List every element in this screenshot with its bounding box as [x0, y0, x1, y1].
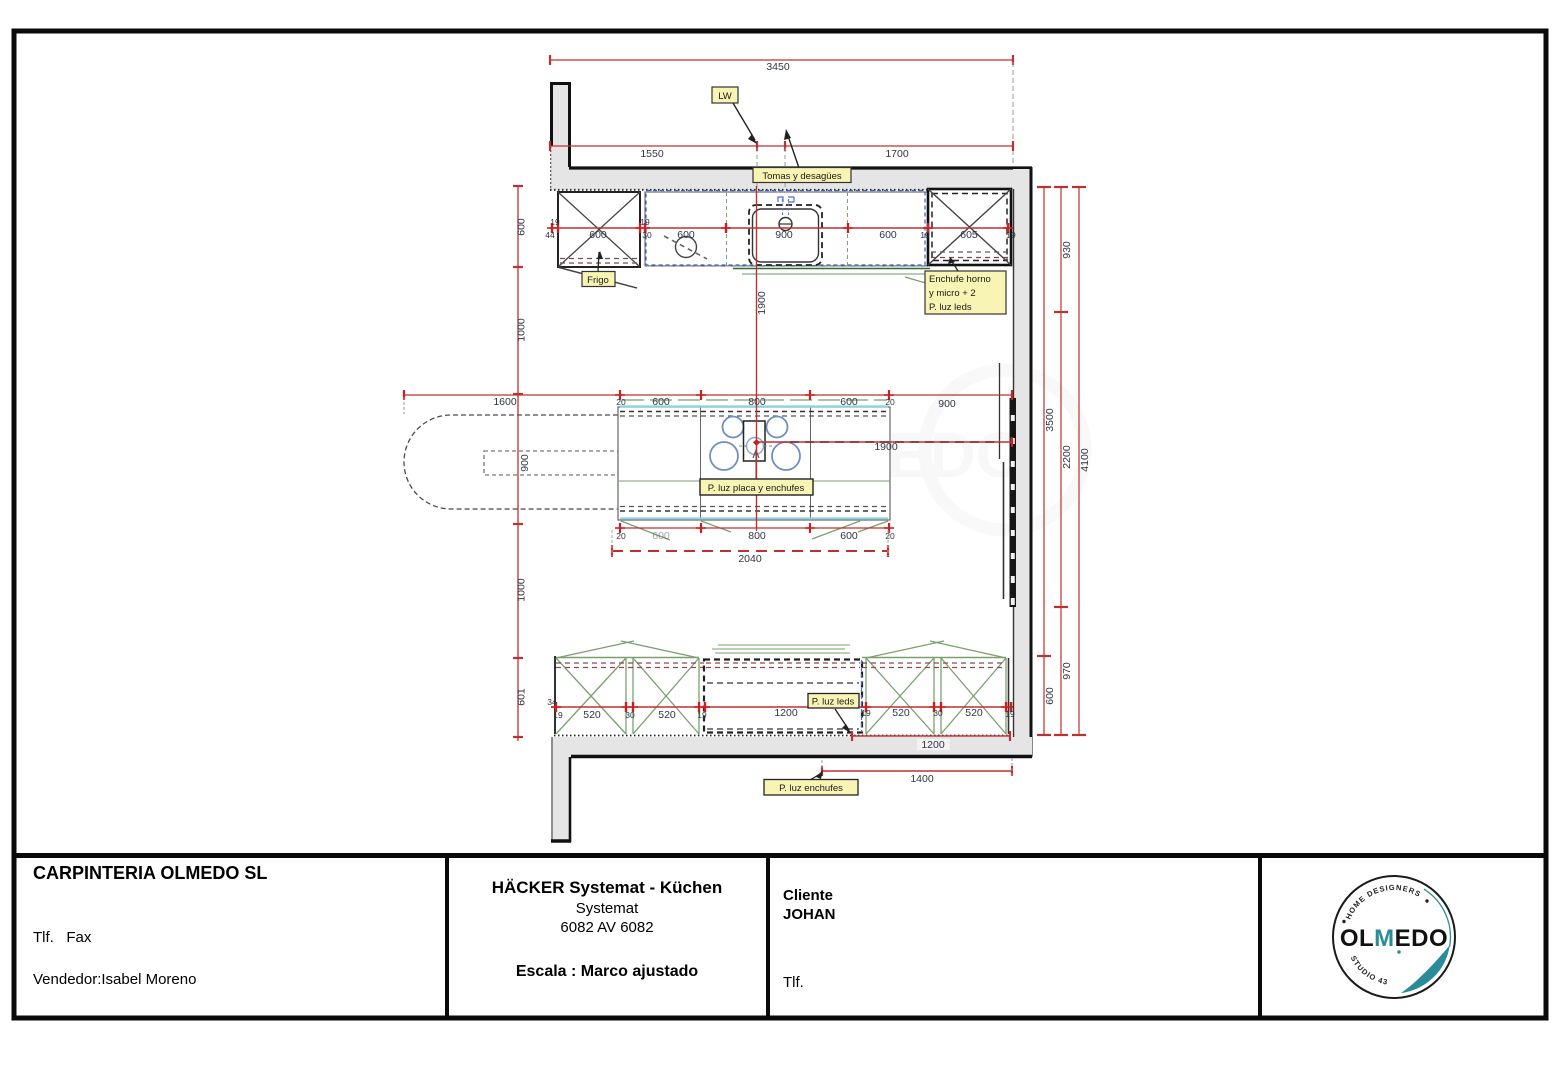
svg-text:1600: 1600 — [493, 396, 517, 408]
svg-text:Systemat: Systemat — [576, 900, 639, 917]
svg-text:900: 900 — [938, 398, 956, 410]
svg-text:30: 30 — [642, 230, 652, 240]
svg-text:P. luz leds: P. luz leds — [812, 697, 855, 708]
svg-text:4100: 4100 — [1079, 448, 1091, 472]
svg-text:44: 44 — [545, 230, 555, 240]
svg-text:520: 520 — [965, 707, 983, 719]
svg-text:20: 20 — [885, 397, 895, 407]
svg-text:1200: 1200 — [774, 707, 798, 719]
svg-text:y micro + 2: y micro + 2 — [929, 288, 976, 299]
svg-text:P. luz placa y enchufes: P. luz placa y enchufes — [708, 483, 805, 494]
svg-text:600: 600 — [879, 229, 897, 241]
svg-text:600: 600 — [652, 396, 670, 408]
svg-text:1900: 1900 — [756, 291, 768, 315]
svg-text:Tomas y desagües: Tomas y desagües — [762, 171, 841, 182]
svg-text:30: 30 — [625, 710, 635, 720]
svg-text:OLMEDO: OLMEDO — [1340, 925, 1448, 952]
svg-text:P. luz enchufes: P. luz enchufes — [779, 783, 843, 794]
svg-text:19: 19 — [697, 710, 707, 720]
svg-text:1000: 1000 — [516, 318, 528, 342]
svg-text:520: 520 — [892, 707, 910, 719]
svg-text:900: 900 — [519, 454, 531, 472]
svg-text:34: 34 — [547, 697, 557, 707]
svg-text:19: 19 — [553, 710, 563, 720]
svg-text:600: 600 — [840, 396, 858, 408]
svg-text:1700: 1700 — [885, 148, 909, 160]
svg-text:3450: 3450 — [766, 61, 790, 73]
svg-text:2040: 2040 — [738, 553, 762, 565]
svg-text:19: 19 — [1006, 230, 1016, 240]
svg-text:1550: 1550 — [640, 148, 664, 160]
svg-text:6082 AV 6082: 6082 AV 6082 — [560, 919, 653, 936]
svg-text:HÄCKER Systemat - Küchen: HÄCKER Systemat - Küchen — [492, 878, 723, 897]
svg-text:19: 19 — [920, 230, 930, 240]
svg-text:20: 20 — [616, 397, 626, 407]
svg-text:19: 19 — [640, 217, 650, 227]
svg-text:600: 600 — [1044, 687, 1056, 705]
svg-text:600: 600 — [516, 218, 528, 236]
svg-text:520: 520 — [658, 709, 676, 721]
svg-text:1900: 1900 — [874, 441, 898, 453]
svg-text:900: 900 — [775, 229, 793, 241]
svg-text:600: 600 — [652, 530, 670, 542]
svg-text:520: 520 — [583, 709, 601, 721]
svg-text:30: 30 — [933, 708, 943, 718]
svg-text:Escala : Marco ajustado: Escala : Marco ajustado — [516, 963, 699, 980]
svg-text:605: 605 — [960, 229, 978, 241]
svg-text:P. luz leds: P. luz leds — [929, 302, 972, 313]
svg-text:LW: LW — [718, 91, 732, 102]
svg-text:19: 19 — [550, 217, 560, 227]
svg-text:600: 600 — [677, 229, 695, 241]
svg-text:20: 20 — [885, 531, 895, 541]
svg-text:Tlf. Fax: Tlf. Fax — [33, 929, 92, 946]
svg-text:19: 19 — [861, 708, 871, 718]
svg-text:Vendedor:Isabel Moreno: Vendedor:Isabel Moreno — [33, 971, 196, 988]
svg-text:1000: 1000 — [516, 578, 528, 602]
svg-text:19: 19 — [1005, 709, 1015, 719]
svg-text:970: 970 — [1061, 662, 1073, 680]
svg-text:JOHAN: JOHAN — [783, 906, 836, 923]
svg-text:Frigo: Frigo — [587, 275, 609, 286]
svg-text:2200: 2200 — [1061, 445, 1073, 469]
svg-text:600: 600 — [589, 229, 607, 241]
svg-text:800: 800 — [748, 530, 766, 542]
svg-text:601: 601 — [516, 688, 528, 706]
svg-text:Enchufe horno: Enchufe horno — [929, 274, 991, 285]
svg-text:20: 20 — [616, 531, 626, 541]
svg-text:Cliente: Cliente — [783, 887, 833, 904]
svg-text:CARPINTERIA OLMEDO SL: CARPINTERIA OLMEDO SL — [33, 863, 267, 883]
svg-text:600: 600 — [840, 530, 858, 542]
svg-text:1400: 1400 — [910, 773, 934, 785]
svg-text:3500: 3500 — [1044, 408, 1056, 432]
svg-text:930: 930 — [1061, 241, 1073, 259]
svg-text:Tlf.: Tlf. — [783, 974, 804, 991]
svg-text:1200: 1200 — [921, 739, 945, 751]
svg-text:800: 800 — [748, 396, 766, 408]
